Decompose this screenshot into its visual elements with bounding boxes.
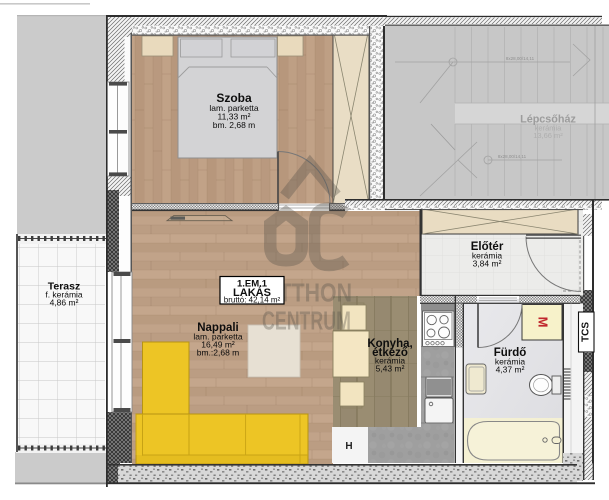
svg-text:bm.:2,68 m: bm.:2,68 m [197, 348, 240, 358]
svg-text:bm. 2,68 m: bm. 2,68 m [213, 120, 256, 130]
svg-text:M: M [536, 317, 551, 328]
svg-text:H: H [345, 441, 352, 452]
svg-text:5,43 m²: 5,43 m² [376, 364, 405, 374]
svg-text:3,84 m²: 3,84 m² [473, 259, 502, 269]
svg-text:8x28,00/14,11: 8x28,00/14,11 [498, 154, 527, 159]
svg-text:4,86 m²: 4,86 m² [50, 298, 79, 308]
svg-text:4,37 m²: 4,37 m² [496, 365, 525, 375]
svg-text:8x28,00/14,11: 8x28,00/14,11 [506, 56, 535, 61]
svg-text:13,66 m²: 13,66 m² [533, 131, 563, 140]
svg-text:TCS: TCS [581, 322, 592, 342]
svg-text:CENTRUM: CENTRUM [262, 306, 351, 335]
svg-text:bruttó: 42,14 m²: bruttó: 42,14 m² [224, 296, 281, 305]
